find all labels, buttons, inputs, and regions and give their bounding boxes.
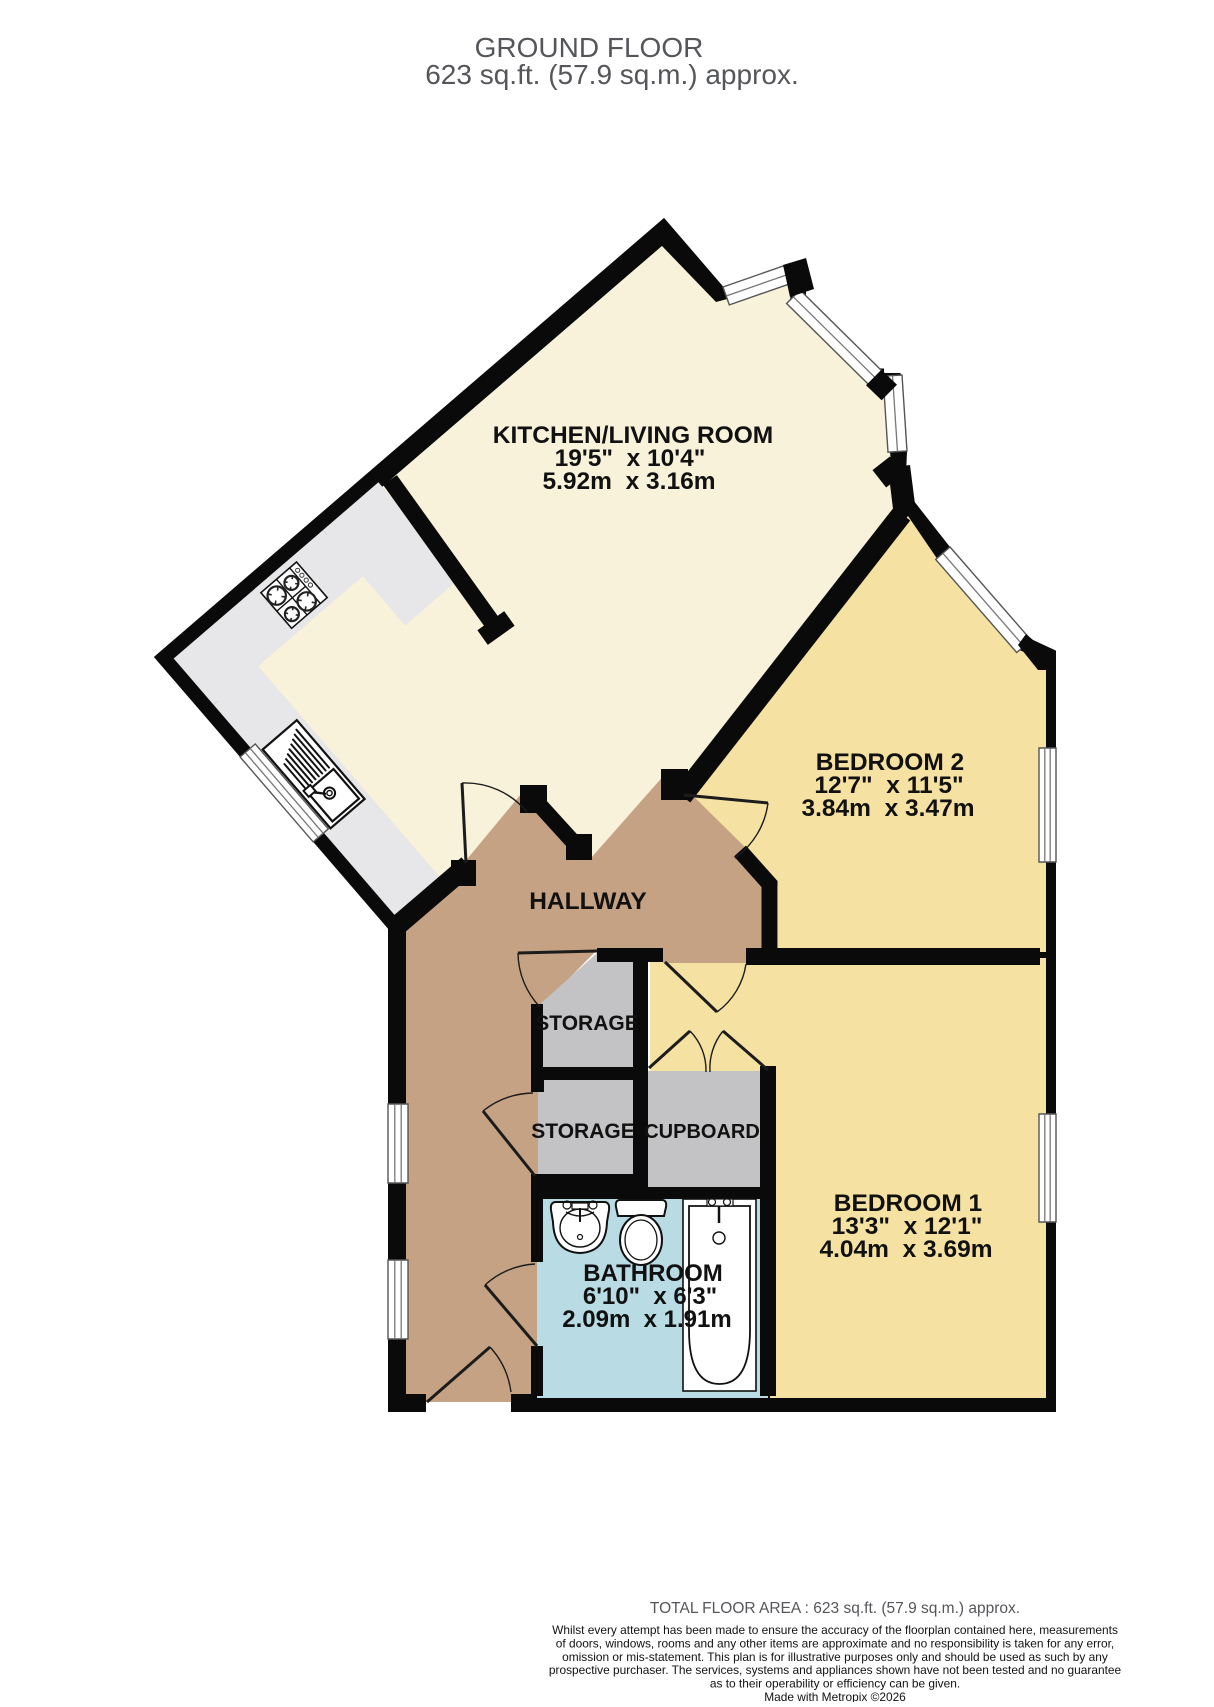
svg-text:TOTAL FLOOR AREA : 623 sq.ft.: TOTAL FLOOR AREA : 623 sq.ft. (57.9 sq.m… (650, 1600, 1020, 1617)
svg-text:Whilst every attempt has been: Whilst every attempt has been made to en… (552, 1623, 1118, 1637)
svg-text:omission or mis-statement. Thi: omission or mis-statement. This plan is … (562, 1650, 1108, 1664)
svg-text:4.04m x 3.69m: 4.04m x 3.69m (820, 1236, 993, 1263)
svg-text:2.09m x 1.91m: 2.09m x 1.91m (562, 1306, 731, 1333)
svg-text:623 sq.ft. (57.9 sq.m.) approx: 623 sq.ft. (57.9 sq.m.) approx. (425, 59, 799, 90)
svg-text:5.92m x 3.16m: 5.92m x 3.16m (543, 468, 716, 495)
svg-text:of doors, windows, rooms and a: of doors, windows, rooms and any other i… (556, 1636, 1114, 1650)
svg-text:STORAGE: STORAGE (531, 1120, 634, 1143)
svg-text:as to their operability or eff: as to their operability or efficiency ca… (710, 1677, 960, 1691)
svg-text:HALLWAY: HALLWAY (529, 888, 647, 915)
svg-text:prospective purchaser. The ser: prospective purchaser. The services, sys… (549, 1663, 1122, 1677)
svg-text:3.84m x 3.47m: 3.84m x 3.47m (802, 795, 975, 822)
svg-text:CUPBOARD: CUPBOARD (644, 1121, 760, 1143)
svg-text:STORAGE: STORAGE (535, 1012, 638, 1035)
svg-text:Made with Metropix ©2026: Made with Metropix ©2026 (764, 1690, 906, 1702)
